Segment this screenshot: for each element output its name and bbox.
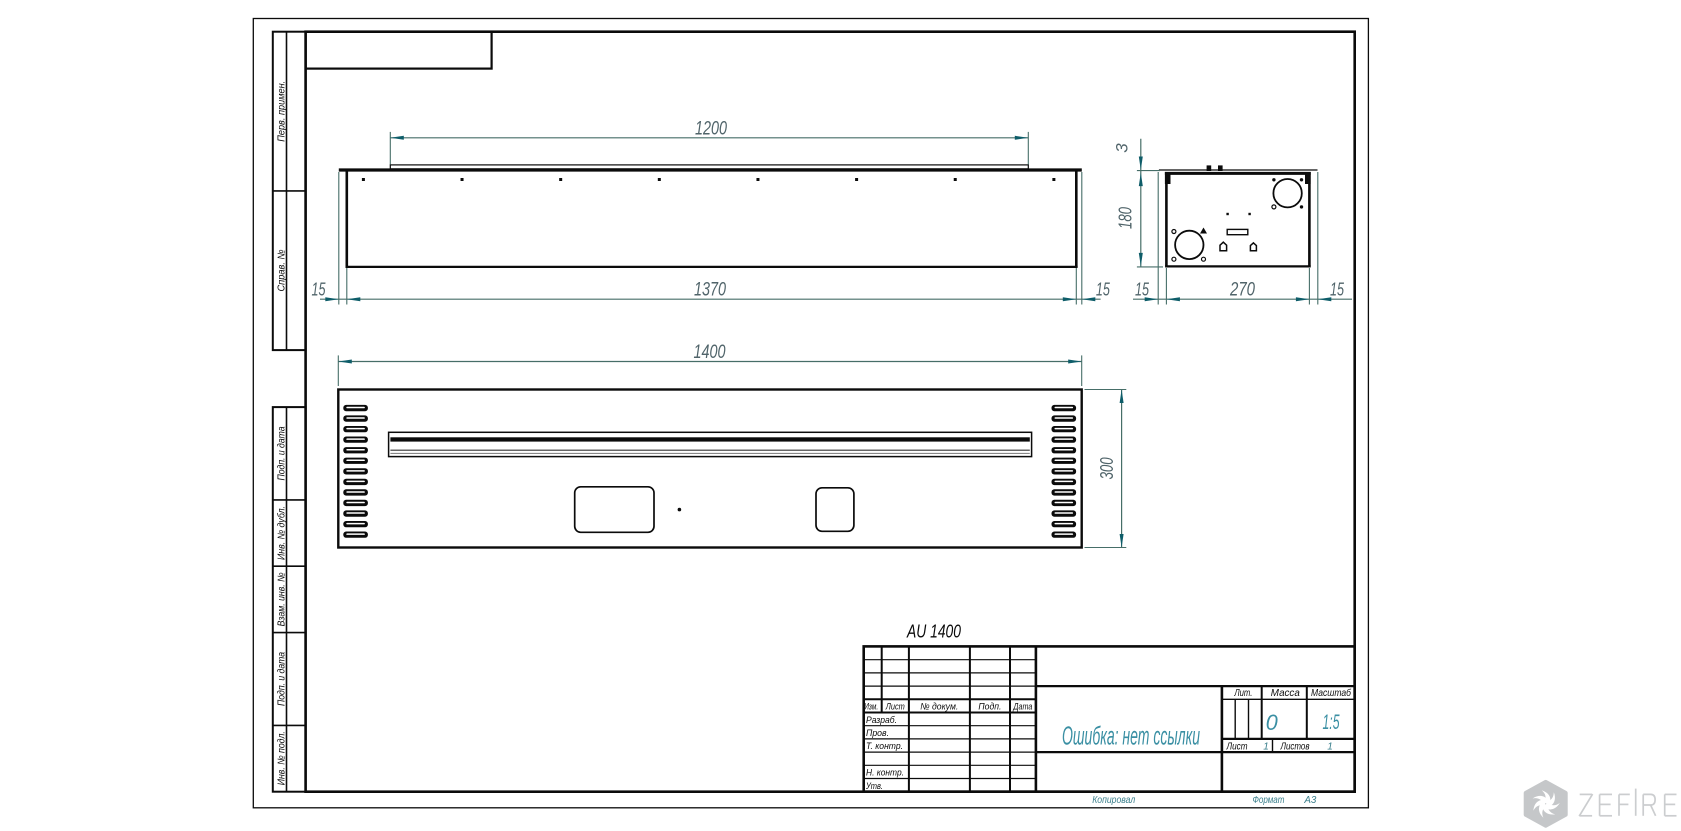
svg-text:А3: А3 bbox=[1303, 794, 1316, 806]
svg-text:Перв. примен.: Перв. примен. bbox=[277, 81, 288, 142]
svg-text:Разраб.: Разраб. bbox=[866, 715, 897, 726]
svg-text:0: 0 bbox=[1266, 710, 1279, 735]
svg-text:300: 300 bbox=[1097, 457, 1117, 479]
svg-text:Листов: Листов bbox=[1280, 741, 1310, 752]
svg-text:1400: 1400 bbox=[694, 342, 726, 363]
svg-text:Т. контр.: Т. контр. bbox=[866, 741, 903, 752]
svg-text:270: 270 bbox=[1229, 280, 1255, 301]
svg-text:Подп.: Подп. bbox=[978, 702, 1001, 713]
svg-text:Дата: Дата bbox=[1013, 702, 1033, 713]
svg-text:15: 15 bbox=[1330, 280, 1345, 300]
svg-text:AU 1400: AU 1400 bbox=[906, 622, 961, 642]
svg-text:1:5: 1:5 bbox=[1323, 711, 1340, 734]
svg-text:15: 15 bbox=[1096, 280, 1111, 300]
svg-text:1: 1 bbox=[1263, 741, 1269, 752]
svg-text:Лист: Лист bbox=[1226, 741, 1248, 752]
svg-text:Подп. и дата: Подп. и дата bbox=[277, 426, 288, 480]
svg-text:1: 1 bbox=[1327, 741, 1333, 752]
svg-text:15: 15 bbox=[312, 280, 327, 300]
svg-text:1200: 1200 bbox=[695, 119, 727, 140]
svg-text:Утв.: Утв. bbox=[865, 781, 883, 792]
svg-text:Масса: Масса bbox=[1271, 687, 1300, 699]
svg-text:Инв. № подл.: Инв. № подл. bbox=[277, 731, 288, 785]
svg-text:Инв. № дубл.: Инв. № дубл. bbox=[276, 506, 288, 560]
svg-text:Справ. №: Справ. № bbox=[277, 249, 288, 291]
svg-text:15: 15 bbox=[1135, 280, 1150, 300]
svg-text:Формат: Формат bbox=[1253, 794, 1285, 806]
svg-text:Копировал: Копировал bbox=[1092, 794, 1135, 806]
svg-text:Н. контр.: Н. контр. bbox=[866, 768, 904, 779]
svg-text:Масштаб: Масштаб bbox=[1311, 687, 1352, 699]
svg-text:Подп. и дата: Подп. и дата bbox=[277, 652, 288, 706]
svg-text:1370: 1370 bbox=[694, 280, 726, 301]
svg-text:180: 180 bbox=[1115, 207, 1135, 229]
svg-text:Лист: Лист bbox=[885, 702, 905, 713]
svg-text:Взам. инв. №: Взам. инв. № bbox=[277, 572, 288, 626]
svg-text:№ докум.: № докум. bbox=[920, 702, 958, 713]
svg-text:Изм.: Изм. bbox=[864, 702, 878, 713]
svg-text:Лит.: Лит. bbox=[1234, 687, 1253, 699]
svg-text:Ошибка: нет ссылки: Ошибка: нет ссылки bbox=[1062, 721, 1200, 751]
svg-text:Пров.: Пров. bbox=[866, 728, 889, 739]
svg-text:3: 3 bbox=[1113, 143, 1132, 153]
